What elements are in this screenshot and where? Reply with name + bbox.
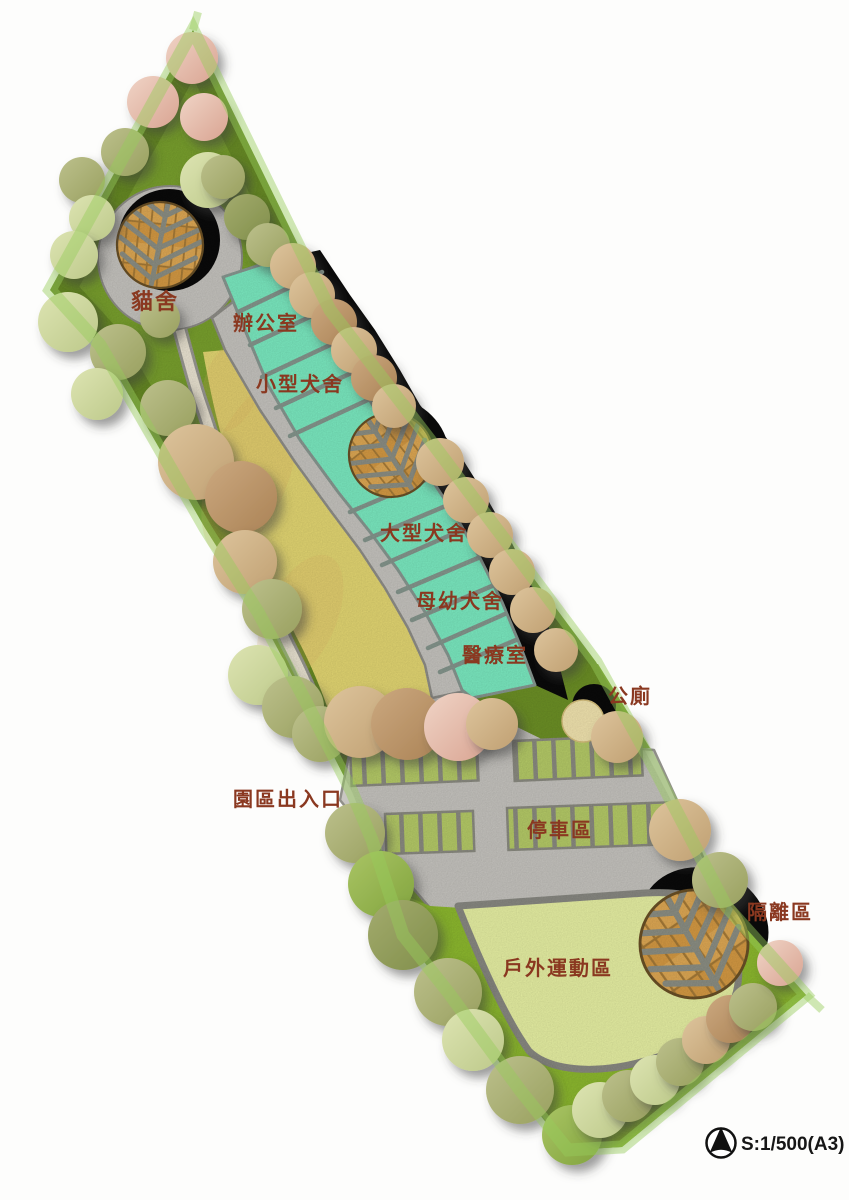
label-office: 辦公室 xyxy=(233,311,299,335)
label-small-dog-kennel: 小型犬舍 xyxy=(256,372,344,396)
label-cat-house: 貓舍 xyxy=(131,289,179,314)
label-outdoor-exercise-area: 戶外運動區 xyxy=(503,956,613,980)
label-large-dog-kennel: 大型犬舍 xyxy=(380,521,468,545)
scale-block: S:1/500(A3) xyxy=(707,1127,845,1158)
label-public-toilet: 公廁 xyxy=(608,684,652,708)
label-isolation-area: 隔離區 xyxy=(747,900,813,924)
label-parking-area: 停車區 xyxy=(527,818,593,842)
scale-text: S:1/500(A3) xyxy=(741,1134,845,1155)
label-park-entrance: 園區出入口 xyxy=(233,788,343,811)
tree xyxy=(466,698,518,750)
label-mother-puppy-kennel: 母幼犬舍 xyxy=(416,589,504,613)
label-medical-room: 醫療室 xyxy=(462,643,528,667)
site-plan-page: 貓舍 辦公室 小型犬舍 大型犬舍 母幼犬舍 醫療室 公廁 園區出入口 停車區 隔… xyxy=(0,0,849,1200)
tree xyxy=(201,155,245,199)
north-arrow-icon xyxy=(707,1127,736,1158)
tree xyxy=(205,461,277,533)
site-plan-svg: 貓舍 辦公室 小型犬舍 大型犬舍 母幼犬舍 醫療室 公廁 園區出入口 停車區 隔… xyxy=(0,0,849,1200)
